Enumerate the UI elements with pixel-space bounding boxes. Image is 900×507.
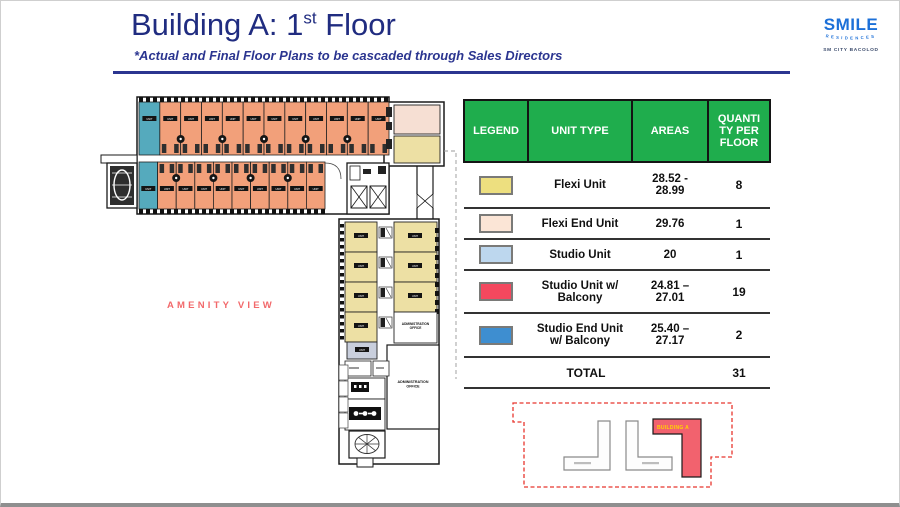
logo-location: SM CITY BACOLOD — [823, 47, 878, 53]
quantity-cell: 2 — [708, 313, 770, 357]
balcony-edge — [181, 97, 185, 102]
balcony-edge — [237, 209, 241, 214]
furniture — [258, 144, 263, 153]
furniture — [197, 164, 202, 173]
furniture — [162, 144, 167, 153]
header-unit-type: UNIT TYPE — [528, 100, 632, 162]
balcony-edge — [384, 97, 388, 102]
areas-cell: 29.76 — [632, 208, 708, 239]
balcony-edge — [160, 209, 164, 214]
bottom-row-units — [139, 162, 325, 209]
furniture — [249, 177, 251, 179]
balcony-edge — [349, 97, 353, 102]
balcony-edge — [435, 246, 439, 251]
balcony-edge — [223, 97, 227, 102]
header-divider — [113, 71, 790, 74]
legend-swatch — [479, 282, 513, 301]
logo-brand: SMILE — [824, 15, 878, 34]
unit-label: UNIT — [292, 117, 298, 121]
unit-label: UNIT — [355, 117, 361, 121]
unit-label: UNIT — [251, 117, 257, 121]
unit-label: UNIT — [238, 187, 244, 191]
unit-label: UNIT — [275, 187, 281, 191]
unit-label: UNIT — [313, 117, 319, 121]
balcony-edge — [340, 329, 344, 333]
quantity-cell: 8 — [708, 162, 770, 208]
furniture — [195, 144, 200, 153]
furniture — [226, 164, 231, 173]
flexi-unit — [394, 136, 440, 163]
furniture — [178, 164, 183, 173]
corridor-cluster — [381, 258, 386, 267]
balcony-edge — [244, 209, 248, 214]
building-label-smudge — [642, 462, 659, 464]
quantity-cell: 19 — [708, 270, 770, 313]
title-superscript: st — [303, 9, 316, 28]
balcony-edge — [202, 97, 206, 102]
admin-offices: ADMINISTRATIONOFFICEADMINISTRATIONOFFICE — [387, 312, 439, 429]
unit-label: UNIT — [271, 117, 277, 121]
balcony-edge — [216, 209, 220, 214]
furniture — [183, 144, 188, 153]
unit-label: UNIT — [412, 234, 418, 238]
page-title: Building A: 1st Floor — [131, 7, 396, 43]
unit-type-cell: Studio Unit w/ Balcony — [528, 270, 632, 313]
balcony-edge — [435, 273, 439, 278]
balcony-edge — [223, 209, 227, 214]
furniture — [346, 138, 348, 140]
furniture — [271, 164, 276, 173]
furniture — [188, 164, 193, 173]
furniture — [349, 144, 354, 153]
furniture — [266, 144, 271, 153]
balcony-edge — [335, 97, 339, 102]
balcony-edge — [340, 287, 344, 291]
balcony-edge — [258, 209, 262, 214]
furniture — [281, 164, 286, 173]
furniture — [341, 144, 346, 153]
unit-label: UNIT — [164, 187, 170, 191]
balcony-edge — [181, 209, 185, 214]
balcony-edge — [293, 209, 297, 214]
balcony-edge — [188, 97, 192, 102]
balcony-edge — [340, 259, 344, 263]
room-label: OFFICE — [406, 385, 420, 389]
furniture — [287, 144, 292, 153]
balcony-edge — [435, 300, 439, 305]
header-areas: AREAS — [632, 100, 708, 162]
unit-label: UNIT — [145, 187, 151, 191]
elevator-core — [347, 163, 389, 214]
subtitle: *Actual and Final Floor Plans to be casc… — [134, 48, 562, 63]
balcony-edge — [370, 97, 374, 102]
legend-table-row: Studio Unit201 — [464, 239, 770, 270]
balcony-edge — [340, 336, 344, 340]
balcony-edge — [340, 294, 344, 298]
furniture — [224, 144, 229, 153]
door-bowtie — [425, 194, 433, 208]
unit-label: UNIT — [209, 117, 215, 121]
header-legend: LEGEND — [464, 100, 528, 162]
unit-type-cell: Flexi End Unit — [528, 208, 632, 239]
legend-swatch — [479, 176, 513, 195]
legend-swatch — [479, 326, 513, 345]
unit-label: UNIT — [201, 187, 207, 191]
unit-label: UNIT — [294, 187, 300, 191]
unit-label: UNIT — [358, 234, 364, 238]
unit-label: UNIT — [334, 117, 340, 121]
balcony-edge — [340, 280, 344, 284]
balcony-edge — [251, 209, 255, 214]
balcony-edge — [435, 282, 439, 287]
furniture — [245, 144, 250, 153]
unit-label: UNIT — [230, 117, 236, 121]
unit-label: UNIT — [182, 187, 188, 191]
furniture — [216, 144, 221, 153]
balcony-edge — [314, 209, 318, 214]
balcony-edge — [216, 97, 220, 102]
furniture — [329, 144, 334, 153]
balcony-edge — [300, 209, 304, 214]
balcony-edge — [307, 209, 311, 214]
unit-label: UNIT — [146, 117, 152, 121]
furniture — [244, 164, 249, 173]
balcony-edge — [435, 237, 439, 242]
furniture — [300, 164, 305, 173]
furniture — [308, 144, 313, 153]
balcony-edge — [340, 245, 344, 249]
legend-table-header-row: LEGEND UNIT TYPE AREAS QUANTI TY PER FLO… — [464, 100, 770, 162]
studio-end-unit — [139, 102, 160, 155]
legend-swatch-cell — [464, 208, 528, 239]
furniture — [170, 164, 175, 173]
legend-swatch-cell — [464, 162, 528, 208]
balcony-edge — [286, 97, 290, 102]
balcony-edge — [340, 224, 344, 228]
corridor-extension — [101, 155, 137, 163]
legend-swatch — [479, 214, 513, 233]
unit-label: UNIT — [376, 117, 382, 121]
balcony-edge — [340, 315, 344, 319]
furniture — [278, 144, 283, 153]
balcony-edge — [146, 97, 150, 102]
balcony-edge — [272, 97, 276, 102]
furniture — [179, 138, 181, 140]
furniture — [320, 144, 325, 153]
areas-cell: 24.81 – 27.01 — [632, 270, 708, 313]
balcony-edge — [435, 291, 439, 296]
furniture — [299, 144, 304, 153]
areas-cell: 20 — [632, 239, 708, 270]
balcony-edge — [435, 255, 439, 260]
flexi-end-unit — [394, 105, 440, 134]
legend-swatch-cell — [464, 313, 528, 357]
legend-swatch-cell — [464, 270, 528, 313]
logo-brand-sub: RESIDENCES — [825, 33, 876, 40]
furniture — [253, 164, 258, 173]
quantity-cell: 1 — [708, 208, 770, 239]
legend-table: LEGEND UNIT TYPE AREAS QUANTI TY PER FLO… — [463, 99, 771, 389]
slide: Building A: 1st Floor *Actual and Final … — [0, 0, 900, 507]
balcony-edge — [328, 97, 332, 102]
balcony-edge — [230, 209, 234, 214]
legend-table-row: Flexi End Unit29.761 — [464, 208, 770, 239]
balcony-edge — [340, 322, 344, 326]
balcony-edge — [340, 266, 344, 270]
balcony-edge — [139, 97, 143, 102]
unit-label: UNIT — [358, 324, 364, 328]
balcony-edge — [377, 97, 381, 102]
unit-label: UNIT — [188, 117, 194, 121]
legend-table-total-row: TOTAL31 — [464, 357, 770, 388]
unit-type-cell: Flexi Unit — [528, 162, 632, 208]
furniture — [362, 144, 367, 153]
balcony-edge — [188, 209, 192, 214]
furniture — [175, 177, 177, 179]
unit-label: UNIT — [358, 264, 364, 268]
furniture — [370, 144, 375, 153]
legend-table-row: Flexi Unit28.52 - 28.998 — [464, 162, 770, 208]
building-label-smudge — [574, 462, 591, 464]
balcony-edge — [340, 231, 344, 235]
furniture — [221, 138, 223, 140]
room-label: OFFICE — [410, 326, 422, 330]
floor-plan: UNITUNITUNITUNITUNITUNITUNITUNITUNITUNIT… — [99, 89, 491, 501]
balcony-edge — [435, 264, 439, 269]
balcony-edge — [251, 97, 255, 102]
balcony-edge — [174, 97, 178, 102]
balcony-edge — [340, 301, 344, 305]
service-rooms — [345, 361, 389, 430]
smile-residences-logo: SMILE RESIDENCES SM CITY BACOLOD — [801, 7, 900, 65]
furniture — [160, 164, 165, 173]
quantity-cell: 1 — [708, 239, 770, 270]
furniture — [212, 177, 214, 179]
balcony-edge — [167, 209, 171, 214]
balcony-edge — [279, 97, 283, 102]
unit-label: UNIT — [359, 348, 365, 352]
unit-label: UNIT — [358, 294, 364, 298]
unit-label: UNIT — [257, 187, 263, 191]
studio-end-unit — [139, 162, 158, 209]
furniture — [263, 164, 268, 173]
furniture — [207, 164, 212, 173]
balcony-edge — [321, 97, 325, 102]
east-end-units — [386, 105, 440, 163]
total-label: TOTAL — [464, 357, 708, 388]
balcony-edge — [340, 273, 344, 277]
balcony-edge — [340, 238, 344, 242]
furniture — [215, 164, 220, 173]
property-line — [444, 151, 456, 379]
corridor-cluster — [381, 228, 386, 237]
balcony-edge — [209, 209, 213, 214]
balcony-edge — [321, 209, 325, 214]
balcony-edge — [195, 209, 199, 214]
balcony-edge — [265, 209, 269, 214]
unit-type-cell: Studio End Unit w/ Balcony — [528, 313, 632, 357]
building-a-label: BUILDING A — [657, 425, 689, 431]
header-quantity: QUANTI TY PER FLOOR — [708, 100, 770, 162]
areas-cell: 28.52 - 28.99 — [632, 162, 708, 208]
title-suffix: Floor — [317, 7, 396, 42]
total-value: 31 — [708, 357, 770, 388]
room-label: ADMINISTRATION — [398, 380, 429, 384]
balcony-edge — [195, 97, 199, 102]
furniture — [237, 144, 242, 153]
balcony-edge — [230, 97, 234, 102]
link-corridor — [417, 166, 433, 219]
balcony-edge — [146, 209, 150, 214]
site-map: BUILDING A — [506, 393, 736, 495]
balcony-edge — [209, 97, 213, 102]
balcony-edge — [286, 209, 290, 214]
unit-label: UNIT — [412, 264, 418, 268]
balcony-edge — [237, 97, 241, 102]
title-text: Building A: 1 — [131, 7, 303, 42]
furniture — [304, 138, 306, 140]
furniture — [308, 164, 313, 173]
amenity-view-label: AMENITY VIEW — [167, 300, 275, 311]
balcony-edge — [258, 97, 262, 102]
furniture — [234, 164, 239, 173]
balcony-edge — [363, 97, 367, 102]
balcony-edge — [293, 97, 297, 102]
unit-label: UNIT — [412, 294, 418, 298]
legend-swatch — [479, 245, 513, 264]
furniture — [319, 164, 324, 173]
areas-cell: 25.40 – 27.17 — [632, 313, 708, 357]
stair-west — [107, 163, 137, 208]
furniture — [287, 177, 289, 179]
unit-type-cell: Studio Unit — [528, 239, 632, 270]
balcony-edge — [160, 97, 164, 102]
balcony-edge — [174, 209, 178, 214]
balcony-edge — [340, 308, 344, 312]
balcony-edge — [167, 97, 171, 102]
balcony-edge — [153, 209, 157, 214]
balcony-edge — [265, 97, 269, 102]
balcony-edge — [202, 209, 206, 214]
balcony-edge — [300, 97, 304, 102]
balcony-edge — [342, 97, 346, 102]
furniture — [290, 164, 295, 173]
corridor-cluster — [381, 288, 386, 297]
legend-table-row: Studio Unit w/ Balcony24.81 – 27.0119 — [464, 270, 770, 313]
furniture — [174, 144, 179, 153]
unit-label: UNIT — [220, 187, 226, 191]
balcony-edge — [356, 97, 360, 102]
legend-table-row: Studio End Unit w/ Balcony25.40 – 27.172 — [464, 313, 770, 357]
furniture — [263, 138, 265, 140]
balcony-edge — [139, 209, 143, 214]
legend-swatch-cell — [464, 239, 528, 270]
unit-label: UNIT — [167, 117, 173, 121]
balcony-edge — [307, 97, 311, 102]
unit-label: UNIT — [313, 187, 319, 191]
corridor-cluster — [381, 318, 386, 327]
door-bowtie — [417, 194, 425, 208]
balcony-edge — [272, 209, 276, 214]
balcony-edge — [340, 252, 344, 256]
balcony-edge — [244, 97, 248, 102]
furniture — [204, 144, 209, 153]
balcony-edge — [314, 97, 318, 102]
balcony-edge — [435, 228, 439, 233]
balcony-edge — [279, 209, 283, 214]
balcony-edge — [153, 97, 157, 102]
